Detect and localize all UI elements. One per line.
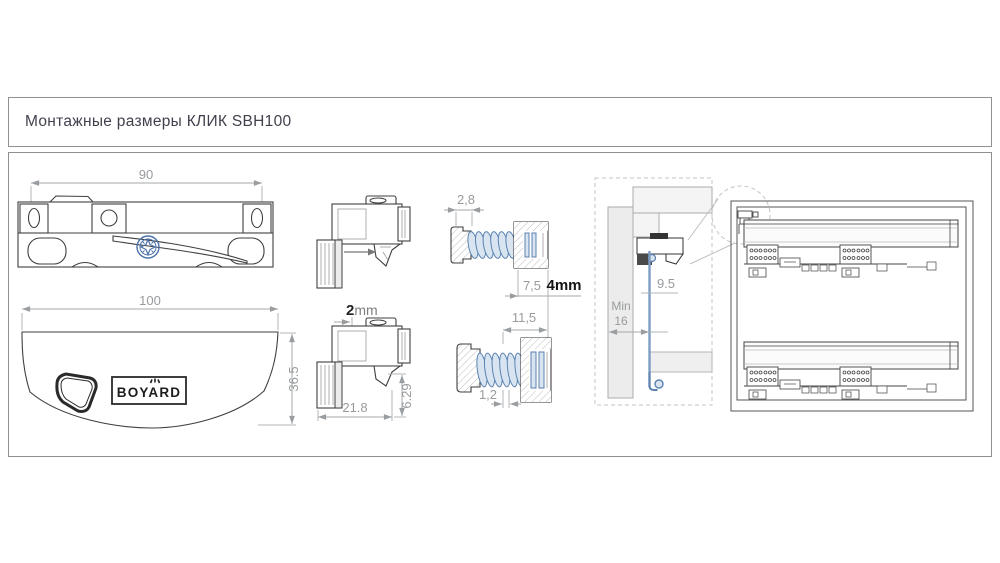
bottom-panel-section bbox=[650, 352, 712, 372]
mounting-section-drawing: 9.5 Min 16 bbox=[595, 178, 712, 405]
dim-90: 90 bbox=[139, 167, 153, 182]
dim-6-29: 6.29 bbox=[399, 383, 414, 408]
dim-11-5: 11,5 bbox=[512, 310, 536, 325]
dim-36-5: 36.5 bbox=[286, 366, 301, 391]
bottom-hook bbox=[650, 372, 664, 390]
latch-section bbox=[637, 238, 683, 254]
thread-coil bbox=[466, 231, 518, 259]
direction-arrow-icon bbox=[344, 249, 376, 256]
title-bar: Монтажные размеры КЛИК SBH100 bbox=[8, 97, 992, 147]
dim-4mm: 4mm bbox=[546, 277, 581, 294]
dim-1-2: 1,2 bbox=[479, 387, 497, 402]
technical-drawing-canvas: 90 100 36.5 BOYARD bbox=[8, 152, 992, 457]
dim-2mm: 2mm bbox=[346, 302, 378, 319]
dim-min-16: 16 bbox=[614, 314, 628, 328]
boyard-logo-text: BOYARD bbox=[117, 385, 181, 400]
dim-2-8: 2,8 bbox=[457, 192, 475, 207]
cabinet-view-drawing bbox=[688, 186, 973, 411]
latch-top-view-drawing: 90 bbox=[18, 167, 273, 267]
latch-side-view-upper-drawing bbox=[317, 196, 410, 288]
page-title: Монтажные размеры КЛИК SBH100 bbox=[25, 113, 291, 131]
dim-100: 100 bbox=[139, 293, 161, 308]
adjuster-lower-drawing: 11,5 1,2 bbox=[457, 310, 551, 408]
adjuster-upper-drawing: 2,8 7,5 4mm bbox=[444, 192, 582, 350]
dim-21-8: 21.8 bbox=[342, 400, 367, 415]
cover-front-view-drawing: 100 36.5 BOYARD bbox=[22, 293, 301, 428]
dim-7-5: 7,5 bbox=[523, 278, 541, 293]
drawer-slide-lower bbox=[744, 342, 958, 399]
thread-coil bbox=[475, 353, 527, 388]
top-panel-section bbox=[633, 187, 712, 213]
drawer-slide-upper bbox=[744, 220, 958, 277]
boyard-logo: BOYARD bbox=[112, 377, 186, 404]
latch-side-view-lower-drawing: 2mm 21.8 6.29 bbox=[317, 302, 414, 421]
dim-min-label: Min bbox=[611, 299, 630, 313]
dim-9-5: 9.5 bbox=[657, 276, 675, 291]
